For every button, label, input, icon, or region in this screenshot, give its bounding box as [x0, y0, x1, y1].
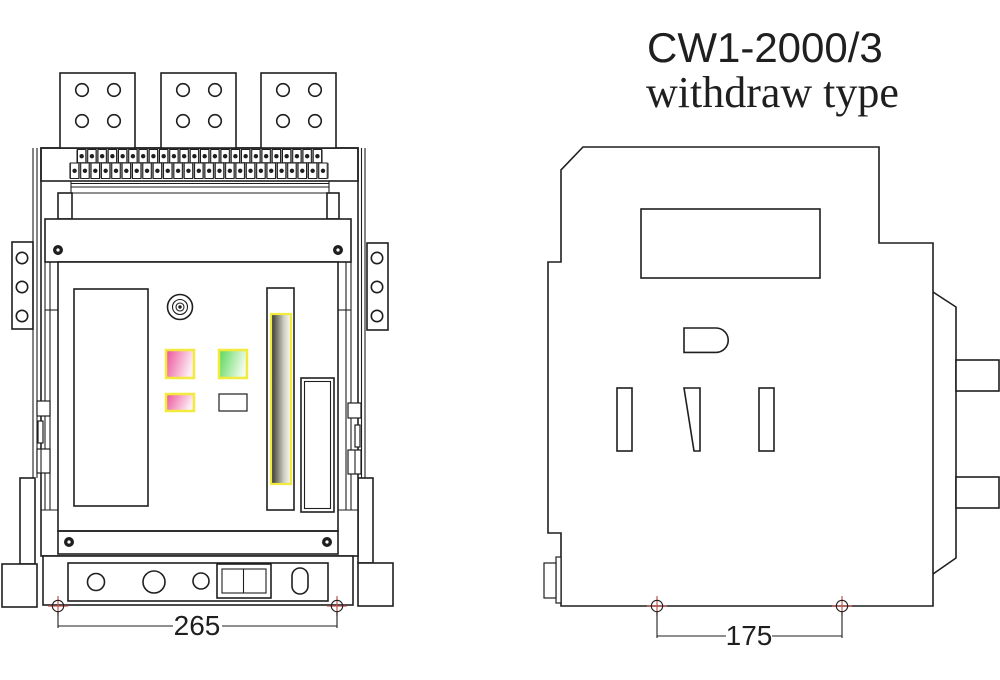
right-mounting-ear	[367, 243, 388, 330]
terminal-screw-dot	[155, 169, 159, 173]
panel-screw-center	[56, 248, 59, 251]
top-cross-plate	[45, 219, 351, 262]
terminal-screw-dot	[186, 169, 190, 173]
terminal-screw-dot	[295, 154, 299, 158]
terminal-screw-dot	[131, 154, 135, 158]
terminal-screw-dot	[93, 169, 97, 173]
left-foot	[2, 564, 37, 607]
terminal-screw-dot	[202, 154, 206, 158]
terminal-screw-dot	[197, 169, 201, 173]
rear-terminal-tab-lower	[956, 477, 999, 508]
side-depth-dimension: 175	[726, 620, 773, 651]
terminal-screw-dot	[259, 169, 263, 173]
drawout-base	[43, 556, 353, 605]
green-pushbutton	[219, 350, 247, 378]
terminal-screw-dot	[274, 154, 278, 158]
terminal-screw-dot	[72, 169, 76, 173]
terminal-screw-dot	[172, 154, 176, 158]
right-foot-column	[358, 478, 373, 563]
terminal-screw-dot	[135, 169, 139, 173]
blank-indicator	[219, 394, 247, 411]
terminal-screw-dot	[79, 154, 83, 158]
terminal-screw-dot	[110, 154, 114, 158]
terminal-screw-dot	[269, 169, 273, 173]
terminal-screw-dot	[83, 169, 87, 173]
terminal-screw-dot	[310, 169, 314, 173]
terminal-screw-dot	[161, 154, 165, 158]
terminal-screw-dot	[315, 154, 319, 158]
terminal-screw-dot	[300, 169, 304, 173]
terminal-screw-dot	[213, 154, 217, 158]
terminal-screw-dot	[243, 154, 247, 158]
left-foot-column	[20, 478, 35, 564]
terminal-screw-dot	[145, 169, 149, 173]
terminal-screw-dot	[207, 169, 211, 173]
type-subtitle: withdraw type	[646, 68, 899, 117]
front-width-dimension: 265	[174, 610, 221, 641]
terminal-screw-dot	[182, 154, 186, 158]
terminal-screw-dot	[228, 169, 232, 173]
panel-screw-center	[67, 540, 70, 543]
terminal-screw-dot	[120, 154, 124, 158]
terminal-screw-dot	[233, 154, 237, 158]
terminal-screw-dot	[166, 169, 170, 173]
terminal-screw-dot	[284, 154, 288, 158]
terminal-screw-dot	[223, 154, 227, 158]
side-view: 175	[544, 147, 999, 651]
terminal-screw-dot	[90, 154, 94, 158]
terminal-screw-dot	[114, 169, 118, 173]
busbar-pad	[161, 73, 236, 148]
technical-drawing-canvas: 265 175 CW1-2000/3 withdraw type	[0, 0, 1000, 680]
secondary-terminal-row-bottom	[70, 163, 327, 179]
rear-terminal-tab-upper	[956, 360, 999, 391]
terminal-screw-dot	[192, 154, 196, 158]
left-mounting-ear	[12, 242, 33, 329]
terminal-screw-dot	[248, 169, 252, 173]
terminal-screw-dot	[124, 169, 128, 173]
circuit-breaker-drawing: 265 175 CW1-2000/3 withdraw type	[0, 0, 1000, 680]
front-panel	[58, 262, 338, 531]
model-title: CW1-2000/3	[647, 24, 883, 71]
panel-screw-center	[325, 540, 328, 543]
terminal-screw-dot	[321, 169, 325, 173]
terminal-screw-dot	[103, 169, 107, 173]
terminal-screw-dot	[279, 169, 283, 173]
terminal-screw-dot	[254, 154, 258, 158]
busbar-pads	[60, 73, 336, 148]
gradient-strip	[271, 314, 291, 484]
guide-roller-bracket	[556, 557, 561, 603]
terminal-screw-dot	[264, 154, 268, 158]
terminal-screw-dot	[100, 154, 104, 158]
terminal-screw-dot	[305, 154, 309, 158]
terminal-screw-dot	[290, 169, 294, 173]
pink-pushbutton	[166, 350, 194, 378]
side-body-outline	[548, 147, 933, 606]
right-support-column	[327, 193, 339, 219]
guide-roller	[544, 563, 556, 598]
terminal-screw-dot	[151, 154, 155, 158]
terminal-screw-dot	[217, 169, 221, 173]
rear-terminal-plate	[933, 292, 956, 574]
title-block: CW1-2000/3 withdraw type	[646, 24, 899, 117]
busbar-pad	[60, 73, 135, 148]
panel-screw-center	[336, 248, 339, 251]
terminal-screw-dot	[141, 154, 145, 158]
left-support-column	[58, 193, 72, 219]
busbar-pad	[261, 73, 336, 148]
terminal-screw-dot	[176, 169, 180, 173]
front-view: 265	[2, 73, 393, 641]
right-foot	[358, 563, 393, 606]
pink-indicator	[166, 394, 194, 411]
terminal-screw-dot	[238, 169, 242, 173]
